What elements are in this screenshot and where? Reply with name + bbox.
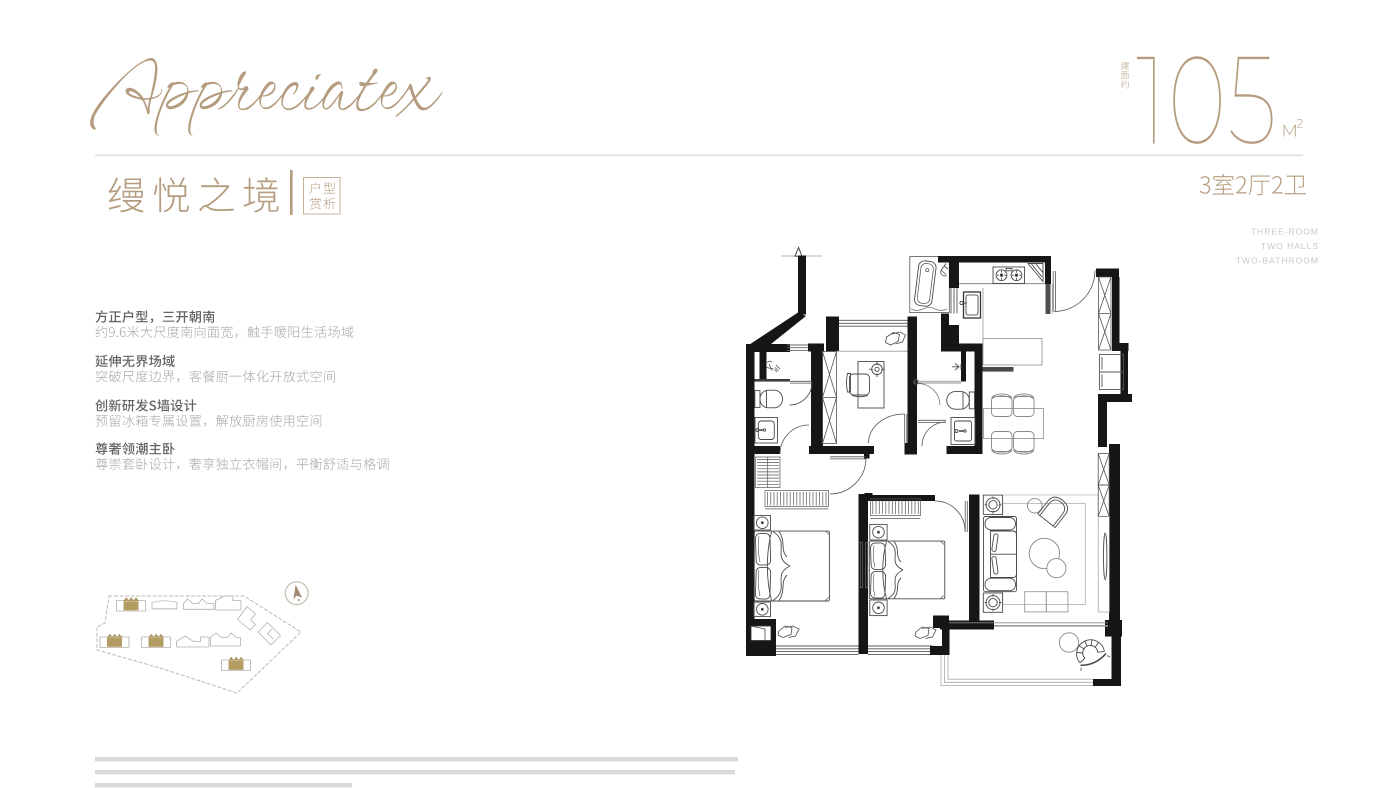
svg-text:TWO HALLS: TWO HALLS [1261,241,1319,251]
svg-text:THREE-ROOM: THREE-ROOM [1251,227,1319,237]
svg-text:TWO-BATHROOM: TWO-BATHROOM [1236,256,1319,266]
